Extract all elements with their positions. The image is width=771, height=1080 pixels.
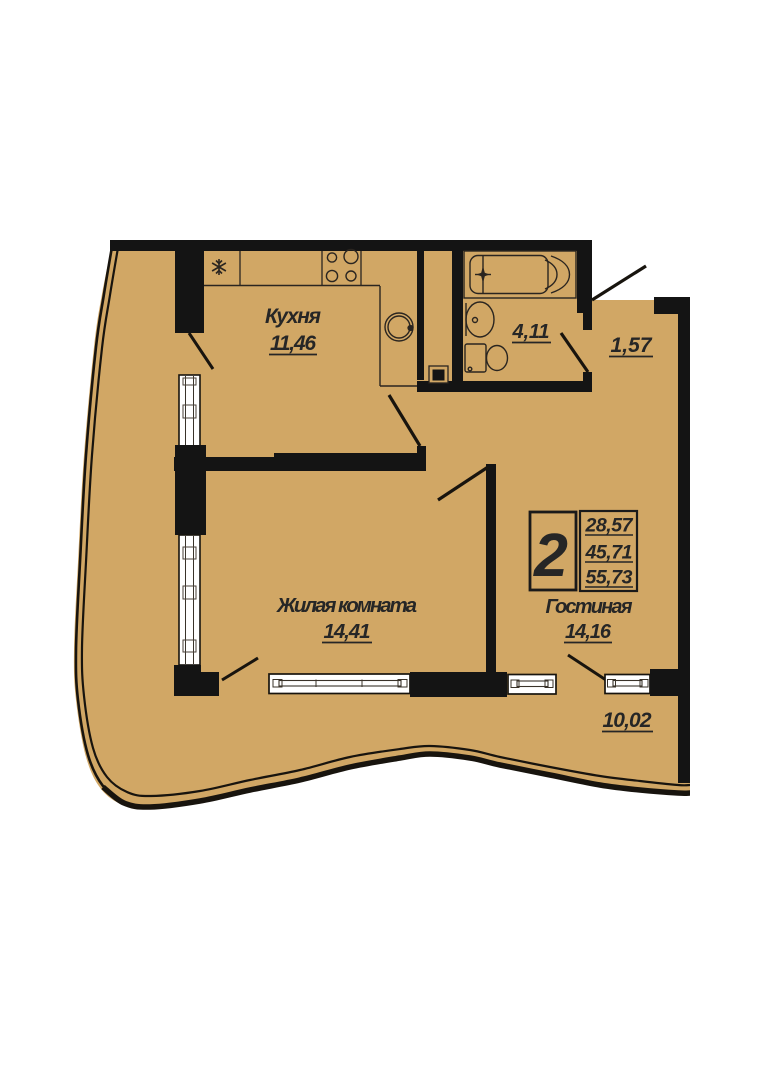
svg-text:28,57: 28,57 — [585, 515, 634, 537]
svg-text:55,73: 55,73 — [586, 567, 633, 589]
svg-text:45,71: 45,71 — [585, 542, 633, 564]
svg-text:Жилая комната: Жилая комната — [276, 594, 417, 617]
svg-text:10,02: 10,02 — [603, 709, 652, 732]
svg-text:Кухня: Кухня — [265, 305, 321, 328]
svg-text:1,57: 1,57 — [611, 334, 653, 357]
svg-text:Гостиная: Гостиная — [546, 596, 633, 618]
svg-text:4,11: 4,11 — [512, 321, 550, 343]
svg-text:14,41: 14,41 — [324, 620, 371, 643]
svg-text:14,16: 14,16 — [565, 621, 612, 643]
svg-text:2: 2 — [533, 521, 568, 589]
svg-text:11,46: 11,46 — [270, 332, 316, 355]
